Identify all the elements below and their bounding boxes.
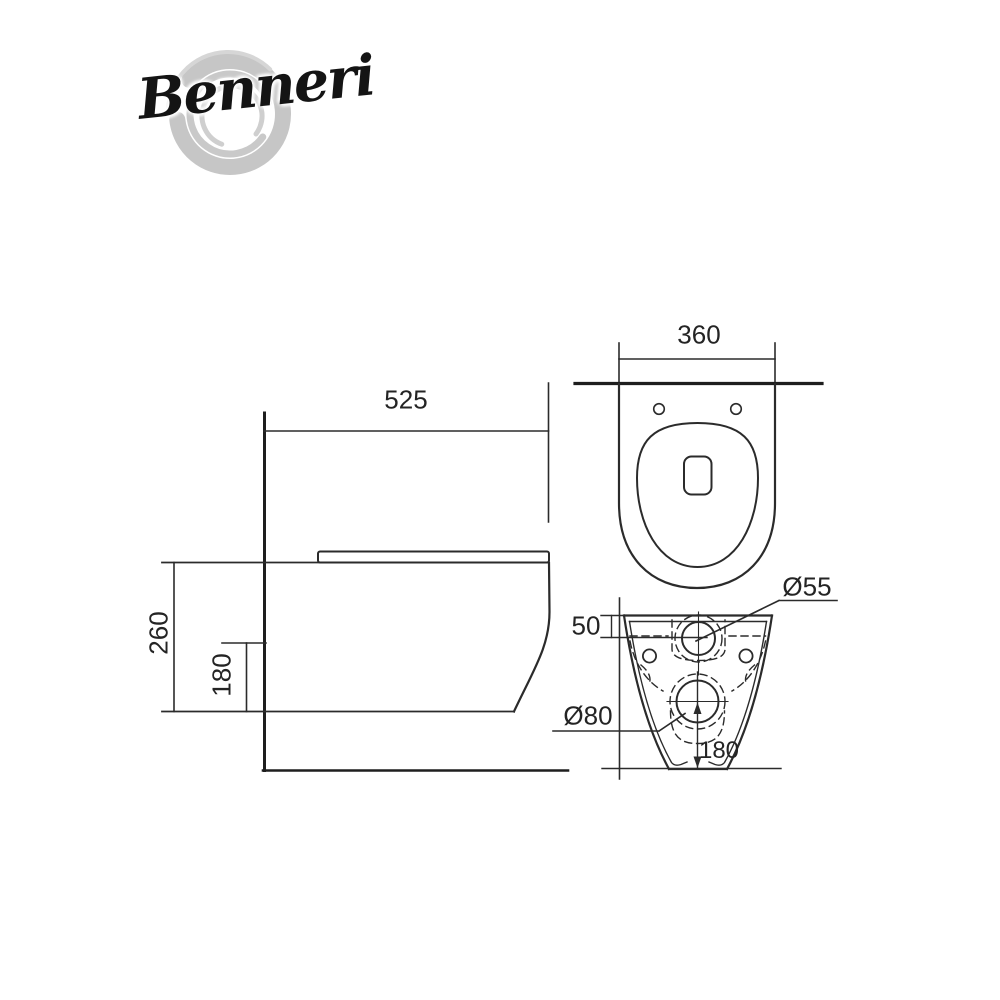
dim-label-side-rim: 180 [207, 653, 238, 696]
rear-hole-left [643, 649, 656, 662]
spec-sheet-page: Benneri [0, 0, 1000, 1000]
rear-hole-right [739, 649, 752, 662]
flush-opening [684, 457, 712, 495]
arrow-up-icon [694, 703, 702, 715]
dim-label-inlet-dia: Ø55 [782, 572, 831, 603]
leader-o55 [696, 601, 837, 642]
technical-drawing [0, 0, 1000, 1000]
mount-hole-right [731, 404, 742, 415]
dim-label-side-width: 525 [384, 385, 427, 416]
mount-hole-left [654, 404, 665, 415]
top-view [575, 343, 822, 588]
dim-label-outlet-height: 180 [699, 737, 739, 765]
rear-left-edge [624, 616, 669, 770]
dim-label-outlet-dia: Ø80 [563, 701, 612, 732]
side-view [162, 383, 568, 771]
dim-label-inlet-offset: 50 [572, 611, 601, 642]
dim-label-top-width: 360 [677, 320, 720, 351]
seat-lid [318, 552, 549, 563]
body-front-edge [514, 563, 550, 712]
bowl-outer-outline [619, 384, 775, 588]
dim-label-side-height: 260 [144, 611, 175, 654]
